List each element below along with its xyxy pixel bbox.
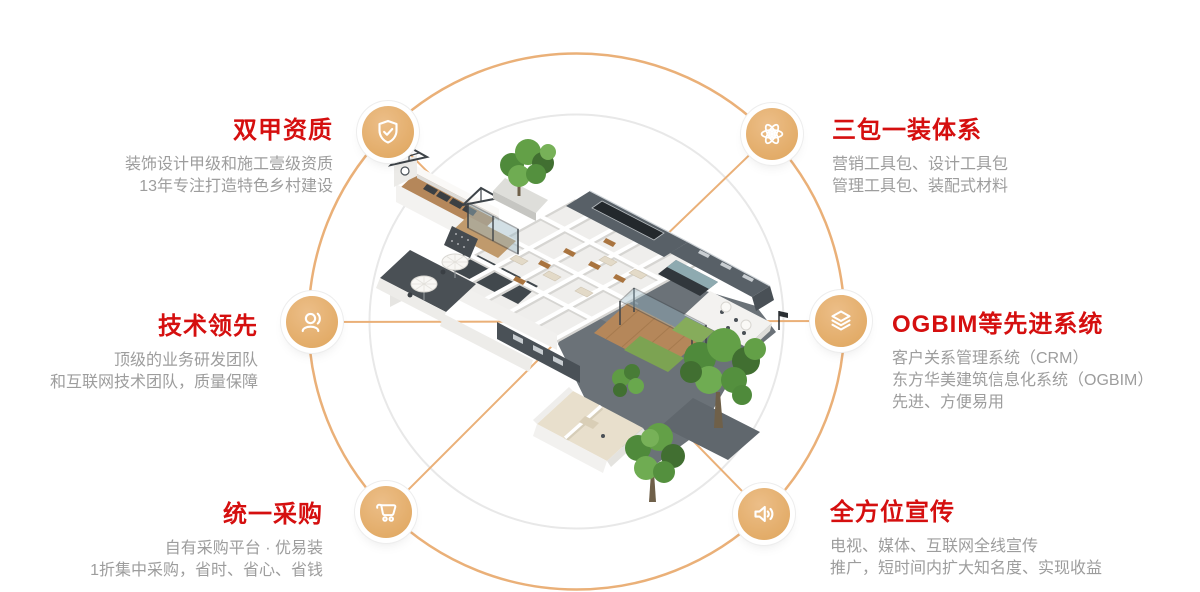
- feature-title: 三包一装体系: [832, 110, 1008, 145]
- feature-line: 东方华美建筑信息化系统（OGBIM）: [892, 370, 1153, 392]
- feature-middle-left: 技术领先 顶级的业务研发团队 和互联网技术团队，质量保障: [50, 306, 258, 394]
- feature-title: OGBIM等先进系统: [892, 304, 1153, 339]
- feature-top-left: 双甲资质 装饰设计甲级和施工壹级资质 13年专注打造特色乡村建设: [125, 110, 333, 198]
- feature-line: 推广，短时间内扩大知名度、实现收益: [830, 558, 1102, 580]
- layers-icon: [815, 295, 867, 347]
- shield-check-icon: [362, 106, 414, 158]
- feature-title: 技术领先: [50, 306, 258, 341]
- shopping-cart-icon: [360, 486, 412, 538]
- feature-title: 统一采购: [90, 494, 323, 529]
- feature-line: 营销工具包、设计工具包: [832, 154, 1008, 176]
- speaker-icon: [738, 488, 790, 540]
- feature-line: 和互联网技术团队，质量保障: [50, 372, 258, 394]
- feature-top-right: 三包一装体系 营销工具包、设计工具包 管理工具包、装配式材料: [832, 110, 1008, 198]
- feature-line: 客户关系管理系统（CRM）: [892, 348, 1153, 370]
- feature-line: 管理工具包、装配式材料: [832, 176, 1008, 198]
- feature-line: 13年专注打造特色乡村建设: [125, 176, 333, 198]
- building-floorplan-illustration: [376, 139, 788, 502]
- feature-line: 1折集中采购，省时、省心、省钱: [90, 560, 323, 582]
- user-service-icon: [286, 296, 338, 348]
- feature-title: 全方位宣传: [830, 492, 1102, 527]
- feature-line: 电视、媒体、互联网全线宣传: [830, 536, 1102, 558]
- infographic-canvas: 双甲资质 装饰设计甲级和施工壹级资质 13年专注打造特色乡村建设 三包一装体系 …: [0, 0, 1200, 592]
- feature-middle-right: OGBIM等先进系统 客户关系管理系统（CRM） 东方华美建筑信息化系统（OGB…: [892, 304, 1153, 414]
- feature-line: 自有采购平台 · 优易装: [90, 538, 323, 560]
- feature-title: 双甲资质: [125, 110, 333, 145]
- feature-bottom-left: 统一采购 自有采购平台 · 优易装 1折集中采购，省时、省心、省钱: [90, 494, 323, 582]
- feature-line: 先进、方便易用: [892, 392, 1153, 414]
- feature-line: 顶级的业务研发团队: [50, 350, 258, 372]
- atom-icon: [746, 108, 798, 160]
- feature-line: 装饰设计甲级和施工壹级资质: [125, 154, 333, 176]
- feature-bottom-right: 全方位宣传 电视、媒体、互联网全线宣传 推广，短时间内扩大知名度、实现收益: [830, 492, 1102, 580]
